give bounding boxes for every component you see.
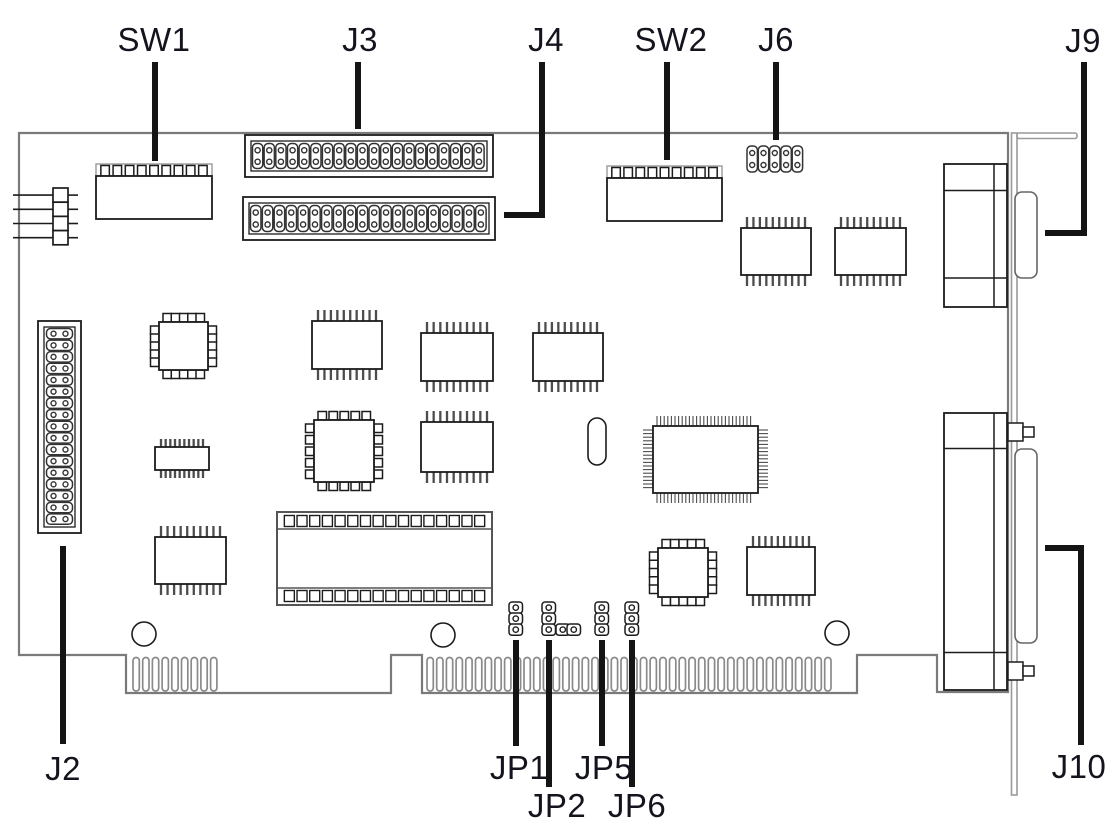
connector-j2	[38, 321, 81, 533]
label-j3: J3	[342, 21, 378, 59]
label-j4: J4	[528, 21, 564, 59]
circuit-board-diagram: SW1 J3 J4 SW2 J6 J9 J2 JP1 JP2 JP5 JP6 J…	[0, 0, 1109, 837]
label-jp2: JP2	[528, 787, 586, 825]
connector-j10	[944, 413, 1037, 690]
ic-dip-1	[421, 322, 493, 392]
ic-dip-3	[421, 411, 493, 483]
ic-dip-7	[835, 217, 906, 286]
connector-sw1	[96, 164, 212, 219]
connector-jp6	[625, 602, 639, 635]
label-sw2: SW2	[634, 21, 707, 59]
label-j9: J9	[1065, 22, 1101, 60]
board-drawing	[0, 0, 1109, 837]
label-jp1: JP1	[490, 749, 548, 787]
label-jp6: JP6	[608, 787, 666, 825]
label-j6: J6	[758, 21, 794, 59]
ic-qfp-0	[643, 416, 768, 503]
connector-j3	[245, 135, 493, 177]
label-j2: J2	[45, 750, 81, 788]
connector-j6	[747, 146, 803, 172]
ic-dip-2	[533, 322, 603, 392]
ic-dip-0	[312, 310, 382, 380]
connector-jp5	[595, 602, 609, 635]
label-jp5: JP5	[575, 749, 633, 787]
ic-socketed-dip-0	[277, 512, 492, 605]
connector-j9	[944, 164, 1037, 307]
connector-jp1	[509, 602, 523, 635]
connector-j4	[243, 197, 495, 240]
ic-plcc-1	[306, 412, 383, 491]
oscillator	[588, 418, 606, 465]
label-sw1: SW1	[117, 21, 190, 59]
label-j10: J10	[1052, 748, 1107, 786]
ic-plcc-2	[650, 540, 717, 606]
ic-dip-8	[747, 536, 815, 606]
connector-sw2	[607, 166, 722, 221]
ic-plcc-0	[151, 314, 217, 379]
ic-dip-5	[155, 526, 226, 595]
ic-dip-6	[741, 217, 811, 286]
